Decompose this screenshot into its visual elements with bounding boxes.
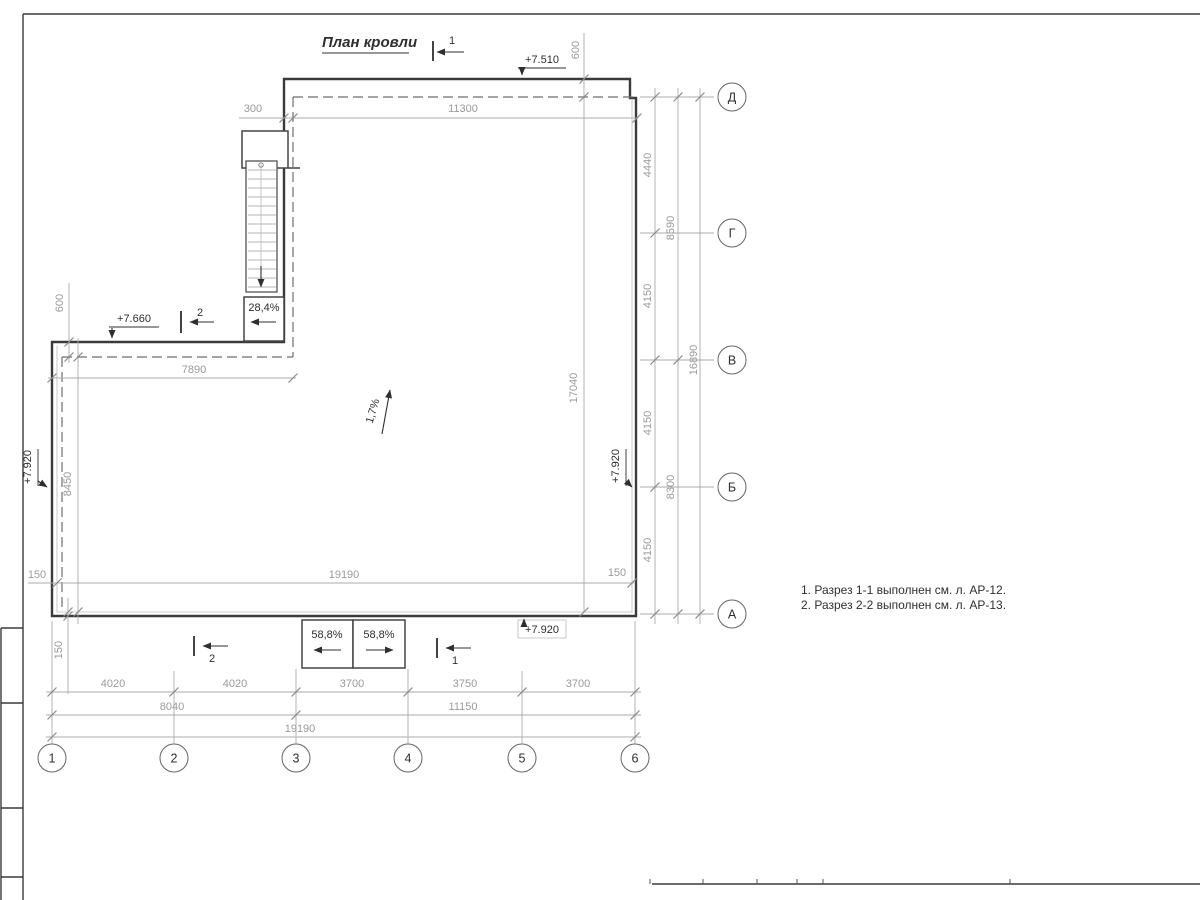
titleblock-ticks [650,879,1010,884]
section-marker-1-top: 1 [433,35,464,61]
elevation-top-value: +7.510 [525,54,559,66]
svg-text:7890: 7890 [182,364,206,376]
svg-text:150: 150 [53,641,65,659]
bottom-dim-row2: 8040 11150 [46,701,641,720]
elevation-right-value: +7.920 [610,449,622,483]
right-dim-lines: 4440 4150 4150 4150 8590 8300 16890 [642,88,705,624]
axis-row-b: Б [728,481,736,495]
elevation-wing-value: +7.660 [117,313,151,325]
svg-text:8450: 8450 [62,472,74,496]
svg-text:600: 600 [54,294,66,312]
note-line-1: 1. Разрез 1-1 выполнен см. л. АР-12. [801,583,1006,597]
elevation-bottom-value: +7.920 [525,624,559,636]
section-notes: 1. Разрез 1-1 выполнен см. л. АР-12. 2. … [801,583,1006,612]
svg-text:11150: 11150 [449,701,478,713]
svg-text:4150: 4150 [642,411,654,435]
col-axis-bubbles [38,744,649,772]
roof-plan-svg: План кровли 28,4% [0,0,1200,900]
svg-text:19190: 19190 [329,569,360,581]
section-1-number: 1 [449,35,455,47]
axis-col-6: 6 [632,752,639,766]
drawing-sheet: План кровли 28,4% [0,0,1200,900]
section-marker-2-bottom: 2 [194,636,228,665]
canopy-slope-right-label: 58,8% [363,629,394,641]
svg-text:4150: 4150 [642,284,654,308]
note-line-2: 2. Разрез 2-2 выполнен см. л. АР-13. [801,598,1006,612]
svg-text:8040: 8040 [160,701,184,713]
axis-col-4: 4 [405,752,412,766]
dim-parapet-right: 150 [608,567,626,579]
section-marker-1-bottom: 1 [437,638,471,667]
svg-text:8300: 8300 [665,475,677,499]
axis-row-v: В [728,354,736,368]
bottom-dim-row3: 19190 [46,723,641,742]
dim-parapet-left: 150 [28,569,46,581]
svg-text:8590: 8590 [665,216,677,240]
bottom-dim-row1: 4020 4020 3700 3750 3700 [46,678,641,697]
elevation-left-value: +7.920 [22,450,34,484]
axis-col-5: 5 [519,752,526,766]
svg-text:4020: 4020 [223,678,247,690]
elevation-bottom: +7.920 [518,619,566,638]
section-marker-2-top: 2 [181,307,214,333]
svg-text:4440: 4440 [642,153,654,177]
stair-slope-label: 28,4% [248,302,279,314]
canopy-slope-left-label: 58,8% [311,629,342,641]
svg-text:1: 1 [452,655,458,667]
svg-text:3700: 3700 [566,678,590,690]
svg-text:3750: 3750 [453,678,477,690]
axis-col-1: 1 [49,752,56,766]
axis-col-3: 3 [293,752,300,766]
elevation-wing: +7.660 [109,313,159,338]
canopy-slope-boxes: 58,8% 58,8% [302,620,405,668]
svg-text:4150: 4150 [642,538,654,562]
roof-outline [52,79,636,616]
svg-text:16890: 16890 [688,345,700,376]
axis-row-d: Д [728,91,737,105]
elevation-top: +7.510 [518,54,566,75]
dim-top-width: 11300 [448,103,478,115]
elevation-left: +7.920 [22,449,47,487]
svg-text:4020: 4020 [101,678,125,690]
svg-text:3700: 3700 [340,678,364,690]
axis-row-g: Г [729,227,736,241]
dim-top-offset: 300 [244,103,262,115]
axis-col-2: 2 [171,752,178,766]
section-2-number: 2 [197,307,203,319]
plan-title: План кровли [322,34,417,51]
dim-right-height: 17040 [568,373,580,404]
dim-top-overhang: 600 [570,41,582,59]
svg-text:2: 2 [209,653,215,665]
axis-row-a: А [728,608,737,622]
svg-text:19190: 19190 [285,723,316,735]
